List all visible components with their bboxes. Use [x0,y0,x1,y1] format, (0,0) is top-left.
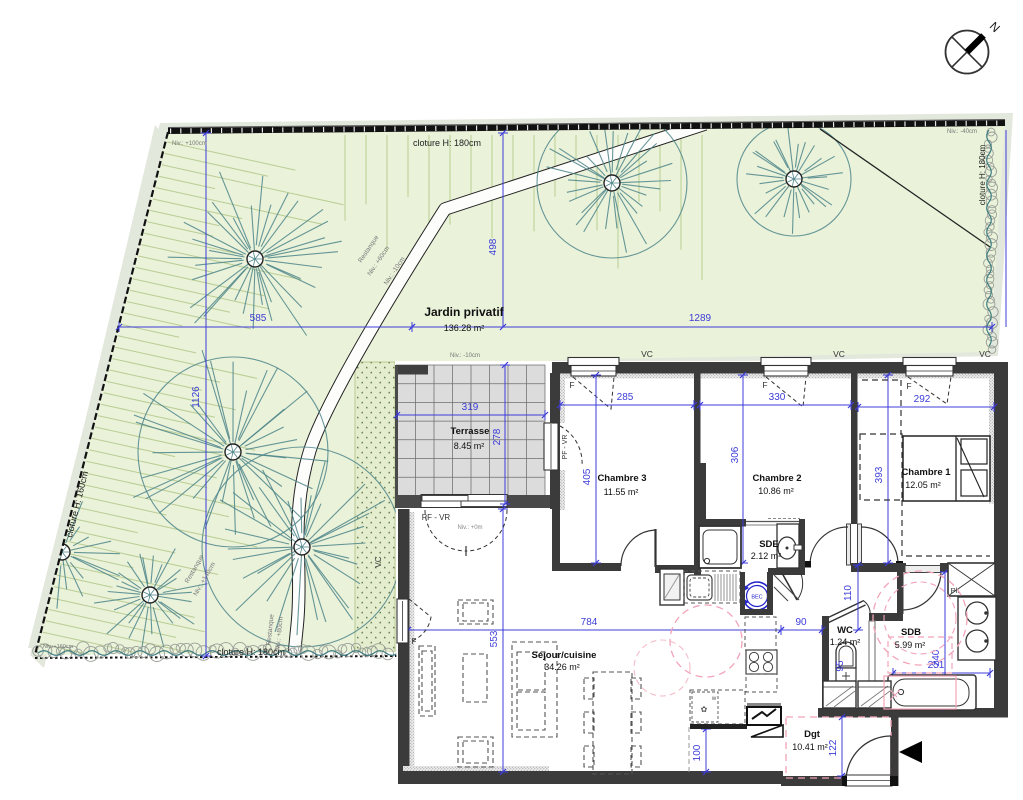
svg-text:VC: VC [641,349,653,359]
svg-text:285: 285 [617,392,634,403]
svg-text:VC: VC [833,349,845,359]
svg-text:Terrasse: Terrasse [451,426,490,437]
svg-text:BEC: BEC [751,595,762,601]
svg-text:136.28 m²: 136.28 m² [444,323,485,333]
svg-text:251: 251 [928,660,945,671]
svg-text:F: F [906,381,911,391]
svg-text:498: 498 [488,238,499,255]
svg-text:330: 330 [769,392,786,403]
svg-text:F: F [762,380,767,390]
svg-text:w: w [711,696,717,702]
svg-text:11.55 m²: 11.55 m² [604,487,639,497]
svg-text:34.26 m²: 34.26 m² [544,662,580,672]
svg-text:405: 405 [582,468,593,485]
svg-text:Dgt: Dgt [804,729,821,740]
svg-text:784: 784 [581,617,598,628]
svg-text:✿: ✿ [701,705,708,714]
svg-text:278: 278 [492,428,503,445]
svg-text:12.05 m²: 12.05 m² [905,480,941,490]
svg-text:1.24 m²: 1.24 m² [830,637,861,647]
svg-text:Niv.:+160cm: Niv.:+160cm [43,644,74,650]
svg-text:VC: VC [374,556,383,567]
svg-text:F: F [569,380,574,390]
svg-text:Séjour/cuisine: Séjour/cuisine [532,650,597,661]
svg-text:Jardin privatif: Jardin privatif [424,305,504,319]
svg-text:306: 306 [730,446,741,463]
svg-text:95: 95 [835,660,846,672]
svg-text:319: 319 [462,402,479,413]
svg-text:Niv.: +0m: Niv.: +0m [457,525,482,531]
svg-text:Niv.: -40cm: Niv.: -40cm [947,129,977,135]
svg-text:90: 90 [795,617,807,628]
svg-text:N: N [987,19,1003,35]
svg-text:292: 292 [914,394,931,405]
svg-text:110: 110 [843,585,854,601]
svg-text:SDB: SDB [901,627,921,638]
svg-text:393: 393 [874,466,885,483]
svg-text:10.41 m²: 10.41 m² [792,742,828,752]
svg-text:585: 585 [250,313,267,324]
svg-text:10.86 m²: 10.86 m² [758,486,794,496]
svg-text:1289: 1289 [689,313,712,324]
svg-text:1126: 1126 [191,386,202,408]
svg-text:5.99 m²: 5.99 m² [895,640,926,650]
svg-text:Chambre 1: Chambre 1 [901,467,951,478]
svg-text:cloture H: 180cm: cloture H: 180cm [978,144,987,205]
svg-text:553: 553 [489,630,500,647]
svg-text:WC: WC [837,625,853,636]
svg-text:Niv.: +100cm: Niv.: +100cm [172,141,207,147]
svg-text:2.12 m²: 2.12 m² [751,551,782,561]
svg-text:SDE: SDE [759,539,779,550]
svg-text:8.45 m²: 8.45 m² [454,441,485,451]
svg-text:100: 100 [692,744,703,761]
svg-text:F: F [412,637,417,646]
svg-text:Niv.: -10cm: Niv.: -10cm [450,353,480,359]
svg-text:PF - VR: PF - VR [562,435,569,460]
svg-text:VC: VC [979,349,991,359]
svg-text:Chambre 3: Chambre 3 [597,473,646,484]
svg-text:122: 122 [828,739,839,756]
svg-text:cloture H: 180cm: cloture H: 180cm [413,138,481,148]
svg-text:Chambre 2: Chambre 2 [752,473,801,484]
